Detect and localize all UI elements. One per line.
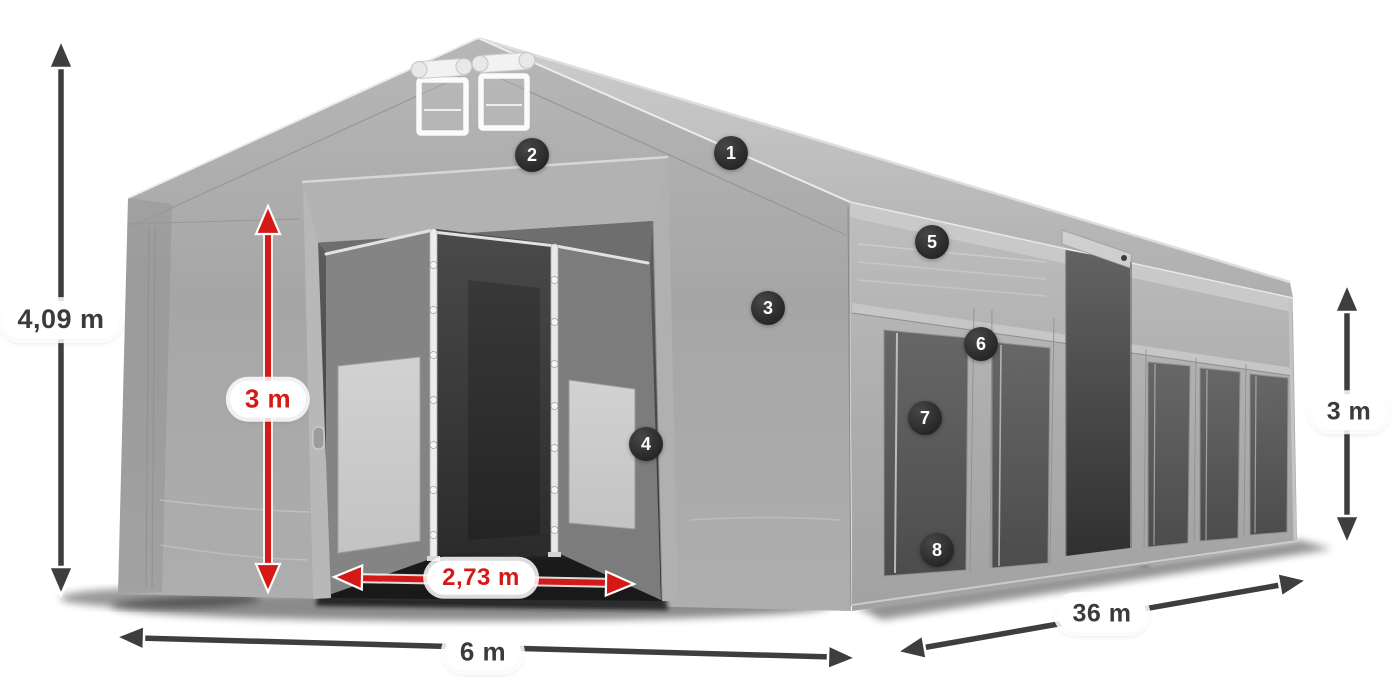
label-total-height: 4,09 m (2, 301, 119, 339)
feature-badge-1[interactable]: 1 (714, 136, 748, 170)
feature-badge-6[interactable]: 6 (964, 327, 998, 361)
tent-dimensions-diagram: 4,09 m 3 m 2,73 m 6 m 36 m 3 m 1 2 3 4 5… (0, 0, 1400, 700)
curtain-window-right (569, 380, 635, 529)
tent-illustration (0, 0, 1400, 700)
label-entrance-width: 2,73 m (427, 561, 535, 595)
feature-badge-5[interactable]: 5 (915, 225, 949, 259)
feature-badge-3[interactable]: 3 (751, 291, 785, 325)
feature-badge-8[interactable]: 8 (920, 533, 954, 567)
interior-curtain-left (326, 229, 433, 596)
vent-right (472, 52, 536, 128)
feature-badge-7[interactable]: 7 (908, 401, 942, 435)
interior-curtain-right (558, 245, 661, 600)
feature-badge-2[interactable]: 2 (515, 138, 549, 172)
label-side-wall-height: 3 m (1312, 394, 1387, 430)
curtain-window-left (338, 357, 420, 553)
feature-badge-4[interactable]: 4 (629, 427, 663, 461)
front-entrance-opening (316, 221, 668, 610)
door-handle (313, 427, 324, 449)
label-side-length: 36 m (1058, 596, 1147, 632)
label-entrance-height: 3 m (230, 381, 306, 418)
side-entrance-gap (1066, 250, 1130, 556)
label-front-width: 6 m (445, 634, 521, 671)
vent-left (411, 58, 473, 133)
